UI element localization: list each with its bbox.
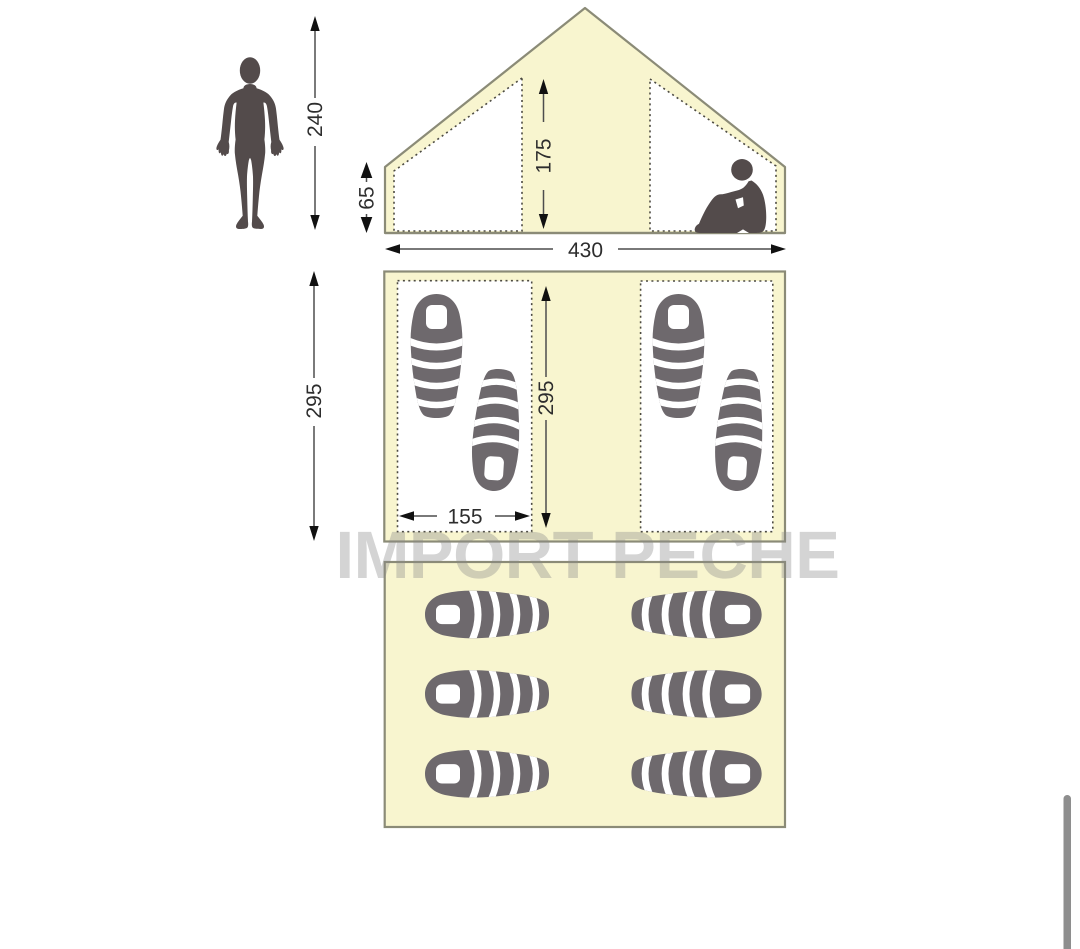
svg-text:175: 175 (533, 138, 556, 173)
svg-text:240: 240 (304, 102, 327, 137)
svg-text:430: 430 (568, 239, 603, 262)
svg-text:295: 295 (303, 383, 326, 418)
svg-text:295: 295 (535, 380, 558, 415)
svg-text:IMPORT PECHE: IMPORT PECHE (336, 518, 840, 593)
svg-text:65: 65 (356, 186, 379, 209)
